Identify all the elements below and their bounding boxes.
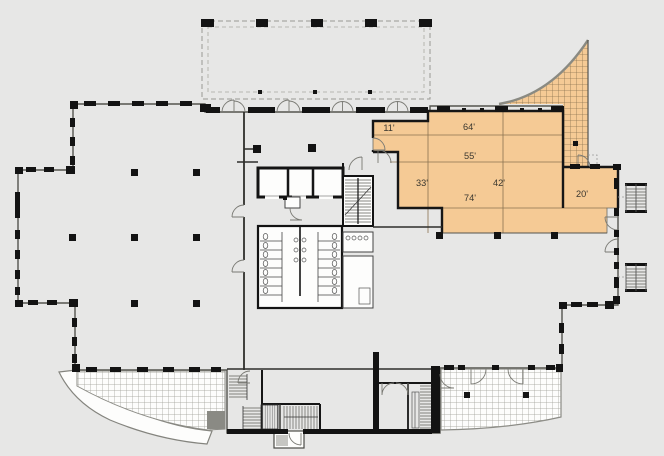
floor-plan-svg: 11' 64' 55' 33' 42' 74' 20': [0, 0, 664, 456]
dimension-label: 33': [416, 178, 428, 188]
elevator-bank: [258, 168, 343, 199]
dimension-label: 20': [576, 189, 588, 199]
lobby-column: [308, 144, 316, 152]
dimension-label: 42': [493, 178, 505, 188]
core-east-rooms: [343, 232, 373, 308]
restrooms: [258, 226, 342, 308]
dimension-label: 64': [463, 122, 475, 132]
terrace-southeast: [441, 369, 561, 430]
ramp-hatch: [261, 405, 278, 429]
stairwell-southeast: [420, 386, 431, 428]
dimension-label: 11': [383, 123, 395, 133]
terrace-dark-patch: [207, 411, 225, 429]
dimension-label: 55': [464, 151, 476, 161]
lobby-column: [253, 145, 261, 153]
janitor-closet: [285, 197, 300, 208]
floor-plan-page: AVAILABLE SPACE: [0, 0, 664, 456]
dimension-label: 74': [464, 193, 476, 203]
